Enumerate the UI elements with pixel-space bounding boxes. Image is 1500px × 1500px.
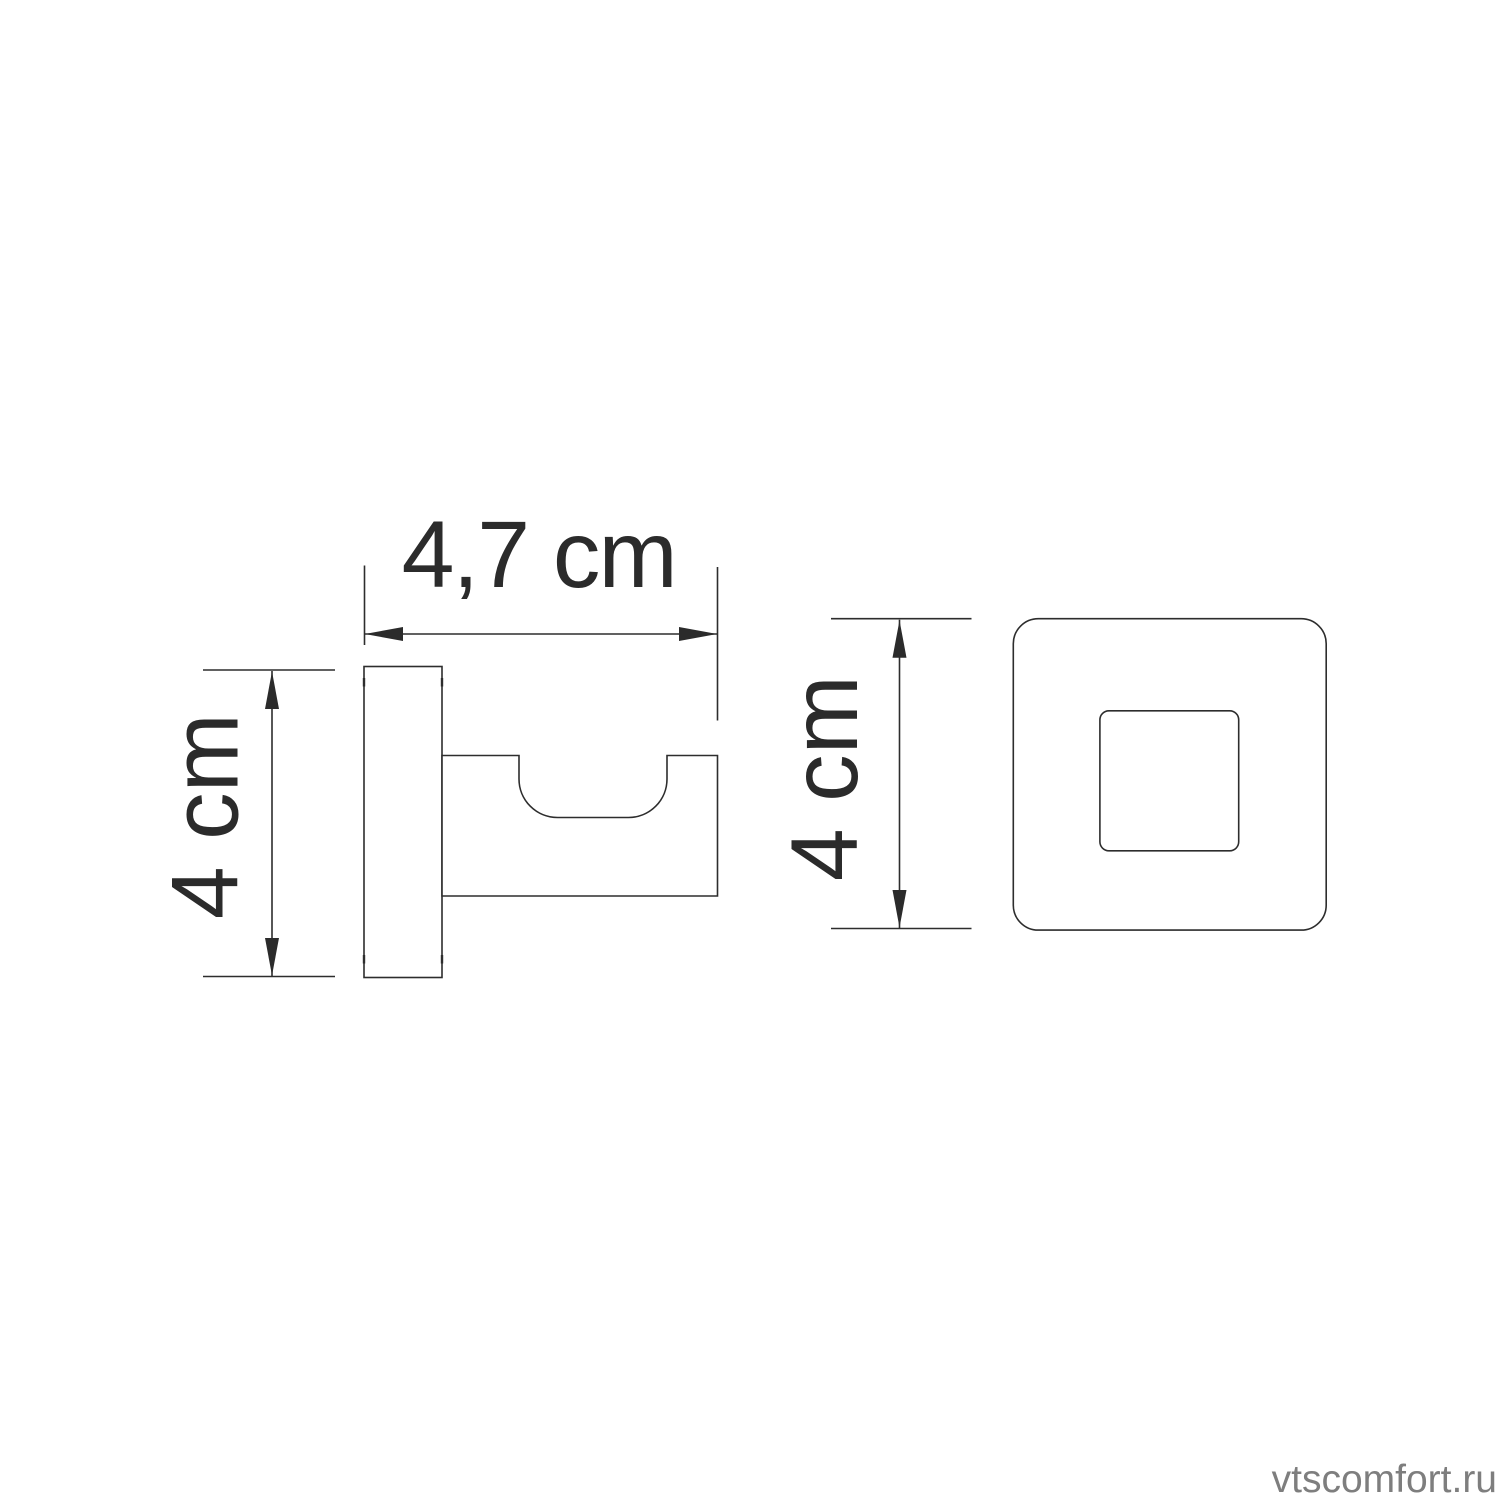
- svg-text:4,7 cm: 4,7 cm: [402, 502, 676, 608]
- svg-text:4 cm: 4 cm: [772, 675, 878, 881]
- svg-text:4 cm: 4 cm: [153, 713, 259, 919]
- svg-text:vtscomfort.ru: vtscomfort.ru: [1272, 1458, 1497, 1500]
